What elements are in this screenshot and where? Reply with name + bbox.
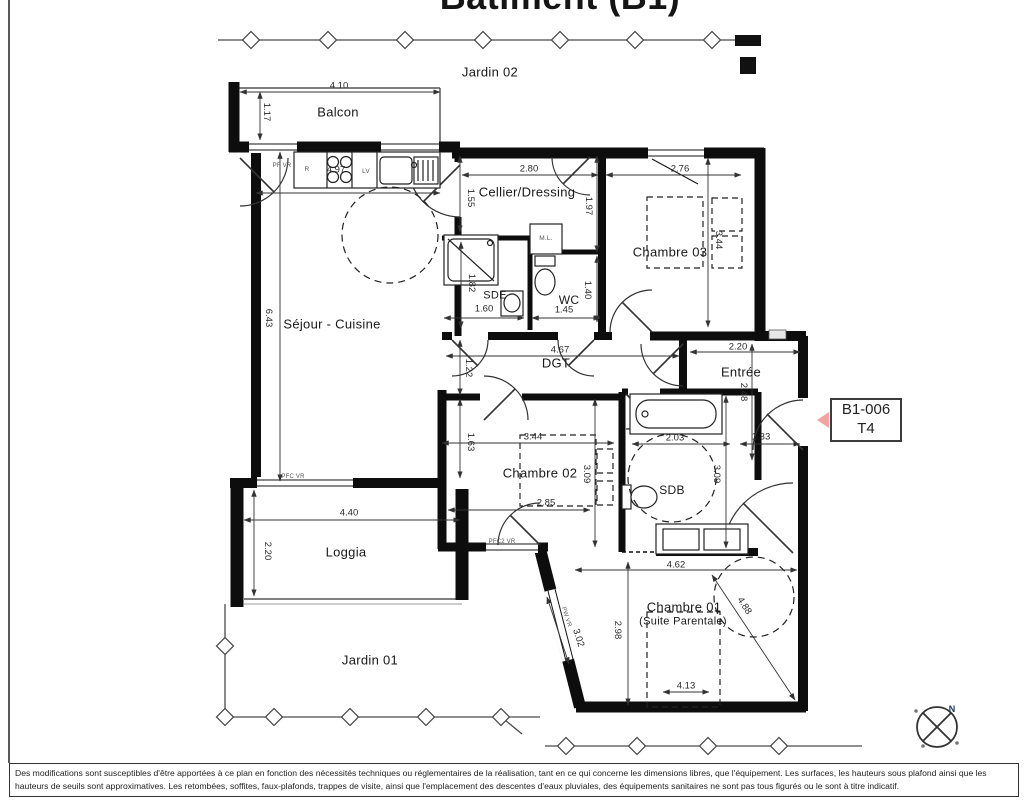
dimension-label: 1.22 xyxy=(463,359,473,378)
dimension-label: 2.85 xyxy=(537,498,556,508)
annotation-label: R xyxy=(305,167,310,174)
dimension-label: 1.17 xyxy=(261,103,271,122)
room-label: Entrée xyxy=(721,366,761,379)
fence-posts xyxy=(735,35,761,74)
compass-north-label: N xyxy=(949,704,956,714)
room-label: DGT xyxy=(542,357,570,370)
fence-layer xyxy=(217,32,862,755)
annotation-label: PF VR xyxy=(273,163,292,169)
wc-toilet xyxy=(535,256,555,295)
disclaimer-text: Des modifications sont susceptibles d'êt… xyxy=(9,763,1019,797)
dimension-label: 4.10 xyxy=(330,81,349,91)
dimension-label: 1.97 xyxy=(583,197,593,216)
room-label: SDB xyxy=(659,484,685,496)
dimension-label: 1.63 xyxy=(465,433,475,452)
room-label: Jardin 01 xyxy=(342,654,398,667)
unit-tag[interactable]: B1-006 T4 xyxy=(830,398,902,442)
dimension-label: 3.09 xyxy=(711,465,721,484)
floorplan-page: Bâtiment (B1) xyxy=(0,0,1024,800)
dimension-label: 1.60 xyxy=(475,304,494,314)
dimension-label: 2.76 xyxy=(671,164,690,174)
unit-code: B1-006 xyxy=(842,401,890,420)
bathtub xyxy=(630,394,722,434)
dimension-label: 4.67 xyxy=(551,345,570,355)
dimension-label: 2.03 xyxy=(666,433,685,443)
annotation-label: M.L. xyxy=(539,236,552,243)
dimension-label: 4.62 xyxy=(667,560,686,570)
room-label: Loggia xyxy=(326,546,367,559)
room-label: Jardin 02 xyxy=(462,66,518,79)
sdb-clearance-circle xyxy=(628,434,716,522)
room-label: SDE xyxy=(483,291,507,302)
annotation-label: PFC VR xyxy=(281,474,304,480)
room-label: Cellier/Dressing xyxy=(479,186,576,199)
room-label: Chambre 03 xyxy=(633,246,708,259)
dimension-label: 4.13 xyxy=(677,681,696,691)
annotation-label: PFC2 VR xyxy=(489,539,516,545)
dimension-label: 1.82 xyxy=(466,274,476,293)
unit-pointer-icon xyxy=(817,412,829,428)
dimension-label: 6.43 xyxy=(263,309,273,328)
dimension-label: 2.98 xyxy=(612,621,622,640)
room-label: Chambre 02 xyxy=(503,467,578,480)
dimension-label: 2.48 xyxy=(738,383,748,402)
dimension-label: 2.80 xyxy=(520,164,539,174)
room-label: Séjour - Cuisine xyxy=(283,318,380,331)
dimension-label: 1.40 xyxy=(582,281,592,300)
dimension-label: 2.20 xyxy=(262,542,272,561)
room-label: Balcon xyxy=(317,106,359,119)
dimension-label: 3.44 xyxy=(713,231,723,250)
sdb-vanity xyxy=(656,524,748,554)
dimension-label: 1.45 xyxy=(555,305,574,315)
dimension-label: 2.20 xyxy=(729,342,748,352)
dimension-label: 4.97 xyxy=(327,165,346,175)
dimension-label: 1.55 xyxy=(465,189,475,208)
room-label: (Suite Parentale) xyxy=(639,617,727,628)
dimension-label: 4.40 xyxy=(340,508,359,518)
unit-type: T4 xyxy=(857,420,875,439)
dimension-label: 3.44 xyxy=(524,432,543,442)
room-label: Chambre 01 xyxy=(647,601,722,614)
doors-layer xyxy=(240,157,803,553)
sdb-toilet xyxy=(622,485,657,509)
dimension-label: 1.33 xyxy=(752,432,771,442)
entry-meter-box xyxy=(769,330,786,339)
annotation-label: LV xyxy=(362,169,370,176)
dimension-label: 3.09 xyxy=(581,465,591,484)
